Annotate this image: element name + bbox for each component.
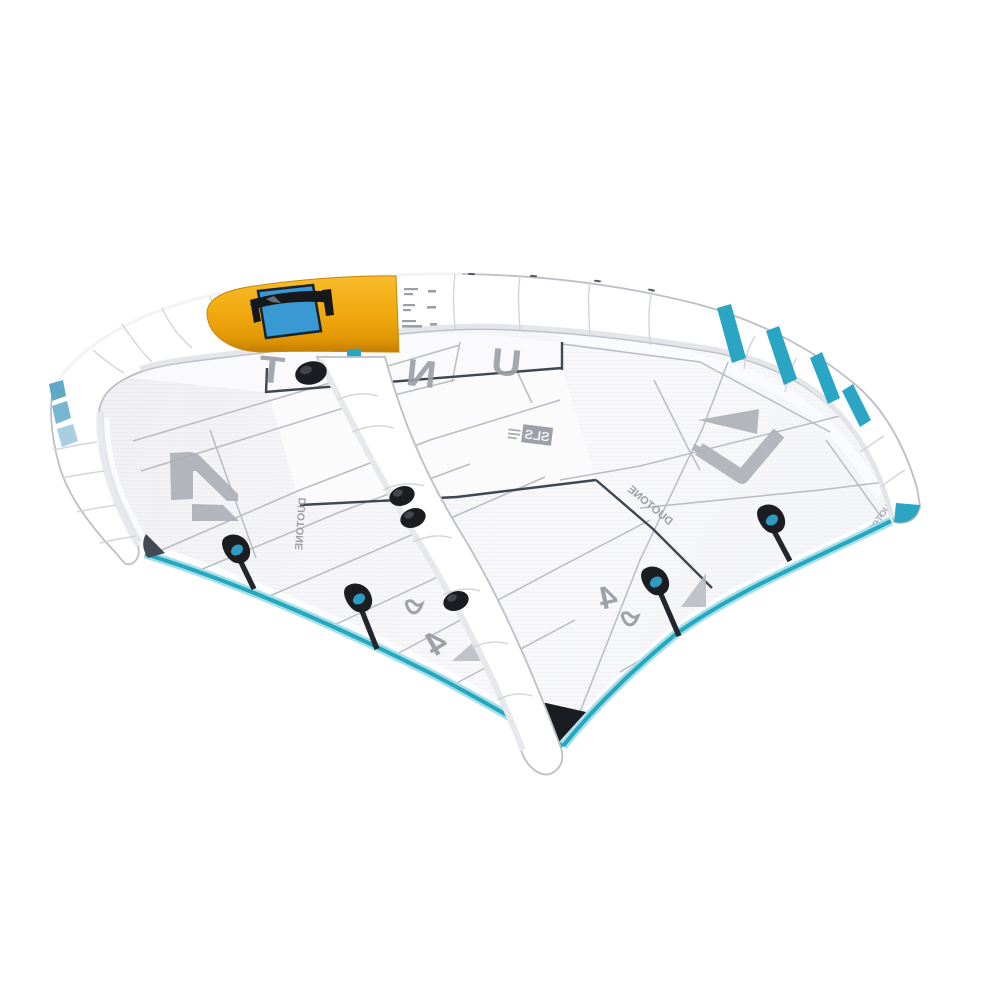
- svg-text:N: N: [404, 352, 438, 397]
- svg-text:T: T: [257, 348, 287, 392]
- svg-text:SLS: SLS: [523, 426, 550, 444]
- svg-text:U: U: [489, 341, 523, 386]
